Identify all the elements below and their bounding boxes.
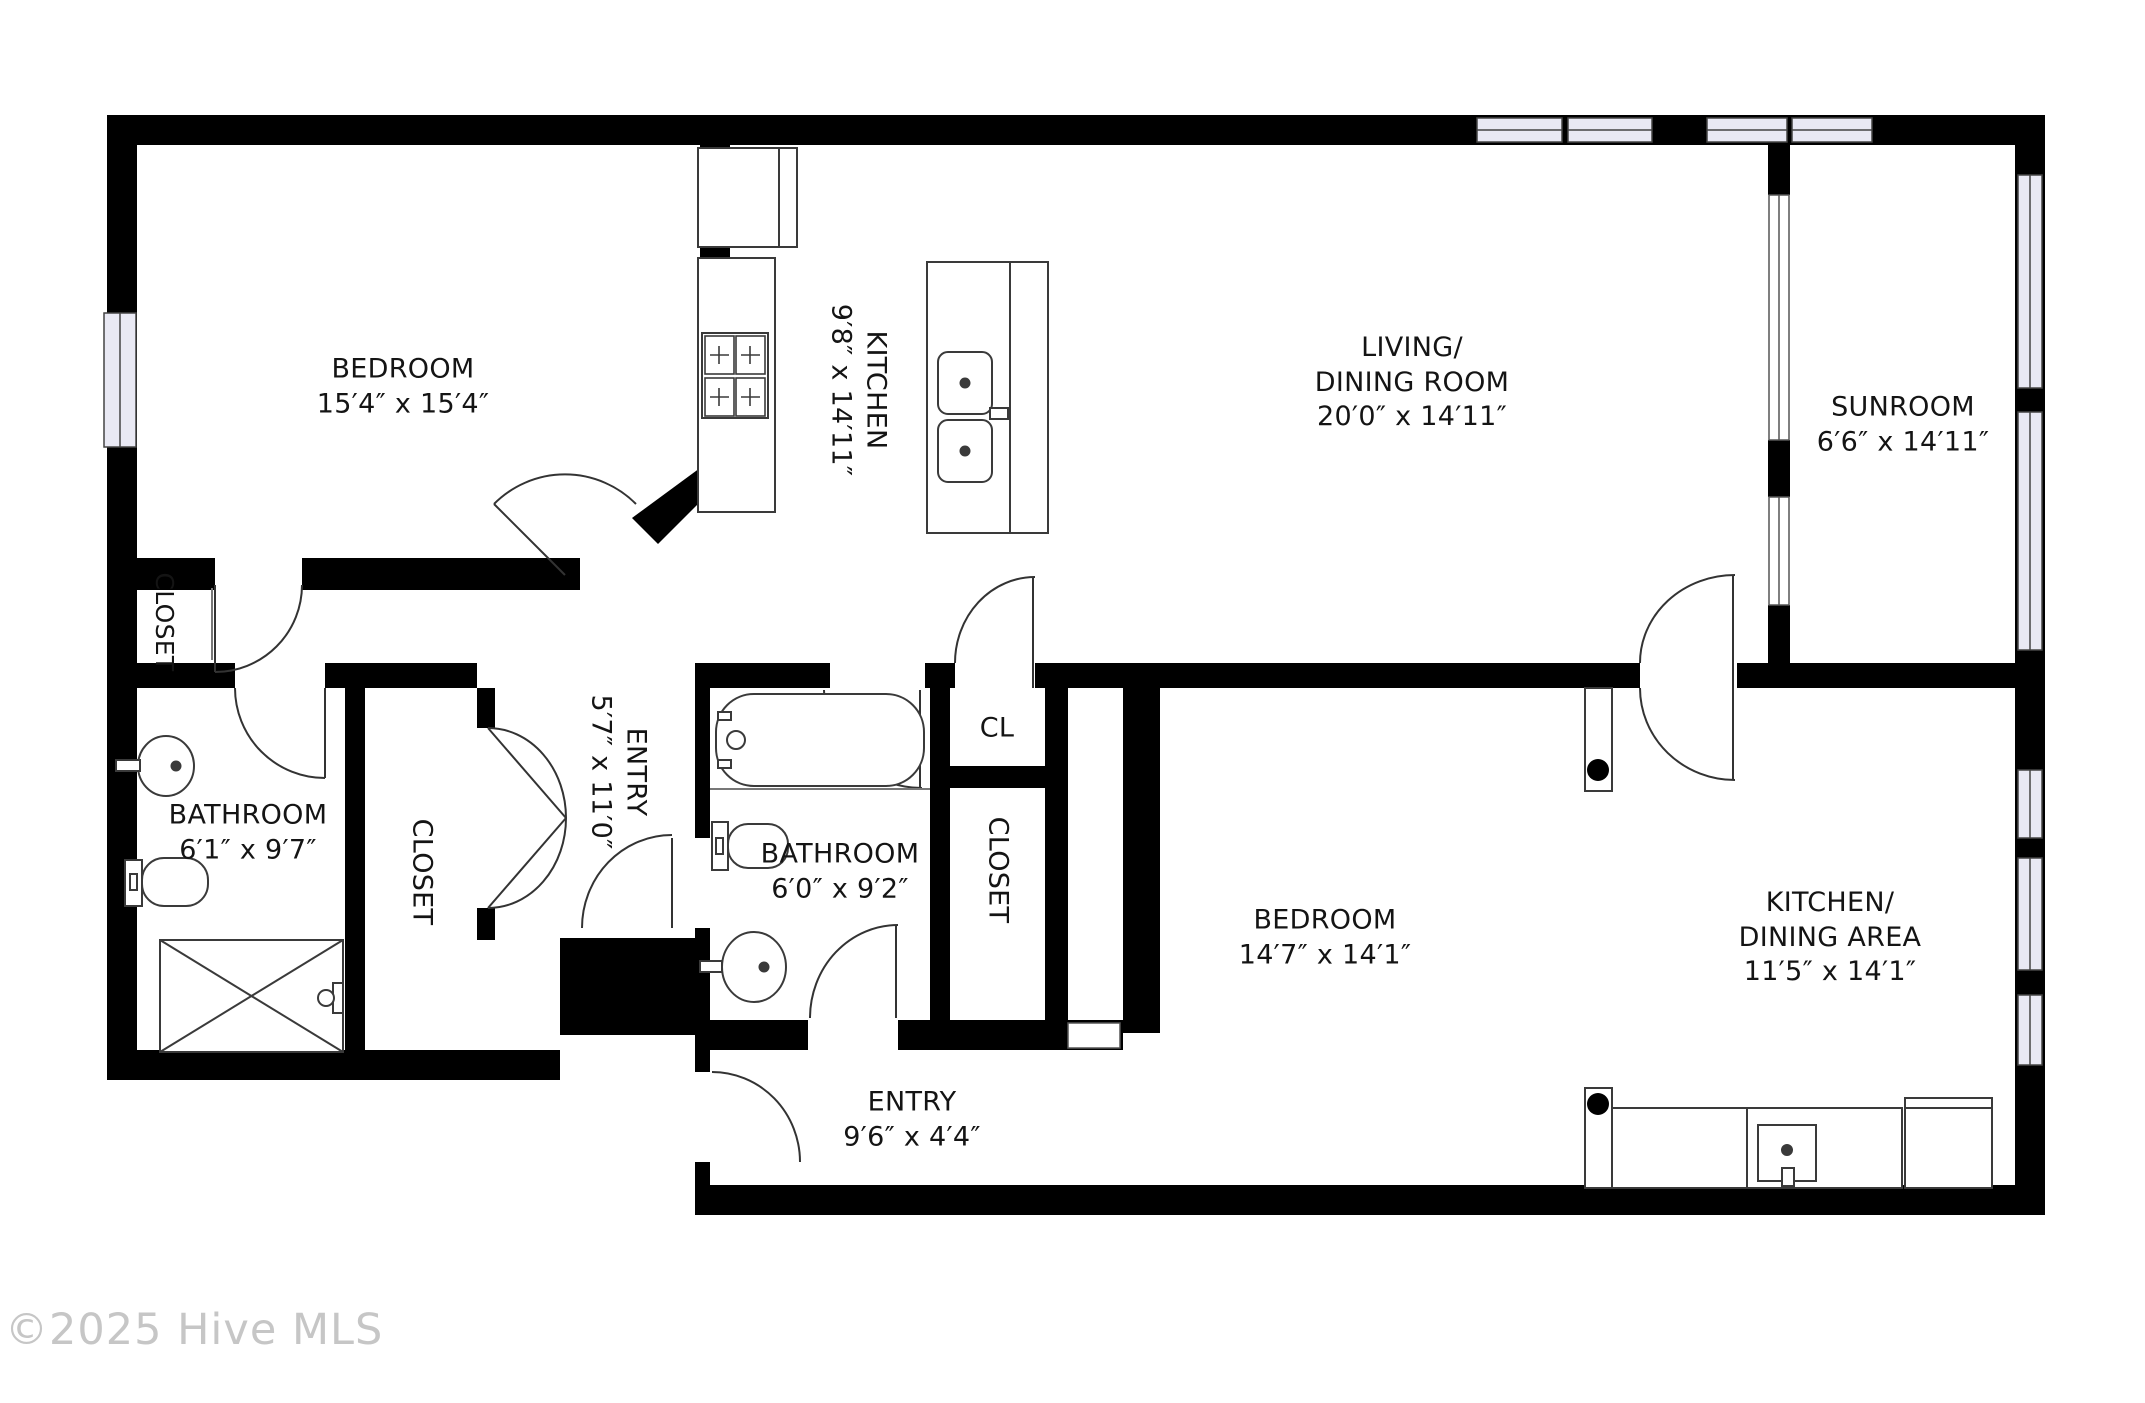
door-swing <box>215 585 302 672</box>
room-name: ENTRY <box>618 694 653 849</box>
floor-plan-canvas: BEDROOM 15′4″ x 15′4″ KITCHEN 9′8″ x 14′… <box>0 0 2145 1403</box>
kitchen-sink-counter <box>1747 1108 1902 1188</box>
window <box>104 313 136 447</box>
room-label-bathroom-2: BATHROOM 6′0″ x 9′2″ <box>761 837 920 906</box>
wall <box>345 663 365 1080</box>
bathtub-fixture <box>716 694 924 786</box>
glass-panel <box>1769 195 1789 440</box>
wall <box>477 908 495 940</box>
window <box>1707 118 1787 142</box>
sink-fixture <box>700 932 786 1002</box>
wall <box>1035 663 1640 688</box>
room-label-bathroom-1: BATHROOM 6′1″ x 9′7″ <box>169 798 328 867</box>
wall <box>1768 145 1790 195</box>
wall <box>1737 663 2045 688</box>
room-size: 11′5″ x 14′1″ <box>1739 955 1922 990</box>
column-strip <box>1585 688 1612 791</box>
wall <box>560 938 710 1035</box>
stove-fixture <box>702 333 768 418</box>
shower-fixture <box>160 940 343 1052</box>
room-size: 9′6″ x 4′4″ <box>843 1120 981 1155</box>
wall <box>477 688 495 728</box>
room-label-kitchen: KITCHEN 9′8″ x 14′11″ <box>823 304 892 477</box>
door-swing <box>235 688 325 778</box>
window <box>2018 412 2042 650</box>
wall <box>695 928 710 940</box>
window <box>1477 118 1562 142</box>
room-label-closet-bedroom1: CLOSET <box>148 573 180 672</box>
wall <box>695 663 830 688</box>
room-name: BEDROOM <box>317 352 490 387</box>
wall <box>695 1020 808 1050</box>
watermark: ©2025 Hive MLS <box>5 1305 383 1355</box>
room-label-bedroom-2: BEDROOM 14′7″ x 14′1″ <box>1239 903 1412 972</box>
room-size: 20′0″ x 14′11″ <box>1315 400 1509 435</box>
window <box>1792 118 1872 142</box>
wall <box>107 115 137 1080</box>
room-label-sunroom: SUNROOM 6′6″ x 14′11″ <box>1817 390 1990 459</box>
room-size: 15′4″ x 15′4″ <box>317 387 490 422</box>
room-name: SUNROOM <box>1817 390 1990 425</box>
room-name: BATHROOM <box>169 798 328 833</box>
wall <box>695 688 710 838</box>
room-label-living-dining: LIVING/ DINING ROOM 20′0″ x 14′11″ <box>1315 331 1509 435</box>
wall <box>695 1185 2045 1215</box>
window <box>2018 175 2042 388</box>
wall <box>1768 605 1790 665</box>
wall <box>1045 663 1068 1035</box>
wall <box>695 1035 710 1072</box>
window <box>2018 770 2042 838</box>
room-label-cl: CL <box>980 712 1015 747</box>
room-label-entry-hall: ENTRY 5′7″ x 11′0″ <box>583 694 652 849</box>
room-name: DINING AREA <box>1739 921 1922 956</box>
room-label-bedroom-1: BEDROOM 15′4″ x 15′4″ <box>317 352 490 421</box>
room-size: 6′6″ x 14′11″ <box>1817 425 1990 460</box>
room-name: LIVING/ <box>1315 331 1509 366</box>
wall <box>898 1020 1045 1050</box>
wall <box>107 1050 560 1080</box>
room-size: 6′0″ x 9′2″ <box>761 872 920 907</box>
wall <box>950 766 1045 788</box>
door-double-swing <box>1640 575 1735 780</box>
room-name: CLOSET <box>148 573 180 672</box>
refrigerator-fixture <box>698 148 797 247</box>
cased-opening <box>1068 1023 1120 1048</box>
room-size: 9′8″ x 14′11″ <box>823 304 858 477</box>
wall <box>1123 688 1160 1033</box>
wall <box>695 1162 710 1185</box>
glass-panels <box>1769 195 1789 605</box>
room-label-closet-hall: CLOSET <box>404 819 439 926</box>
kitchen-island <box>927 262 1048 533</box>
room-name: CLOSET <box>980 817 1015 924</box>
room-name: CL <box>980 712 1015 747</box>
wall <box>302 558 580 590</box>
walls <box>107 115 2045 1215</box>
window <box>2018 858 2042 970</box>
room-name: BATHROOM <box>761 837 920 872</box>
room-name: BEDROOM <box>1239 903 1412 938</box>
wall <box>930 688 950 1020</box>
wall <box>925 663 955 688</box>
appliance-fixture <box>1905 1098 1992 1188</box>
window <box>1568 118 1652 142</box>
wall <box>1768 440 1790 497</box>
door-swing <box>712 1072 800 1162</box>
room-name: DINING ROOM <box>1315 366 1509 401</box>
door-swing <box>955 577 1035 688</box>
room-name: KITCHEN <box>858 304 893 477</box>
glass-panel <box>1769 497 1789 605</box>
room-label-kitchen-dining: KITCHEN/ DINING AREA 11′5″ x 14′1″ <box>1739 886 1922 990</box>
room-label-closet-bedroom2: CLOSET <box>980 817 1015 924</box>
room-label-entry-2: ENTRY 9′6″ x 4′4″ <box>843 1085 981 1154</box>
room-size: 6′1″ x 9′7″ <box>169 833 328 868</box>
door-swing <box>810 925 898 1018</box>
room-size: 5′7″ x 11′0″ <box>583 694 618 849</box>
window <box>2018 995 2042 1065</box>
room-name: KITCHEN/ <box>1739 886 1922 921</box>
room-size: 14′7″ x 14′1″ <box>1239 938 1412 973</box>
kitchen-counter <box>1612 1108 1747 1188</box>
floor-plan-drawing <box>0 0 2145 1403</box>
room-name: ENTRY <box>843 1085 981 1120</box>
column-strip <box>1585 1088 1612 1188</box>
wall-diagonal <box>632 468 700 544</box>
door-bifold <box>488 728 566 908</box>
room-name: CLOSET <box>404 819 439 926</box>
